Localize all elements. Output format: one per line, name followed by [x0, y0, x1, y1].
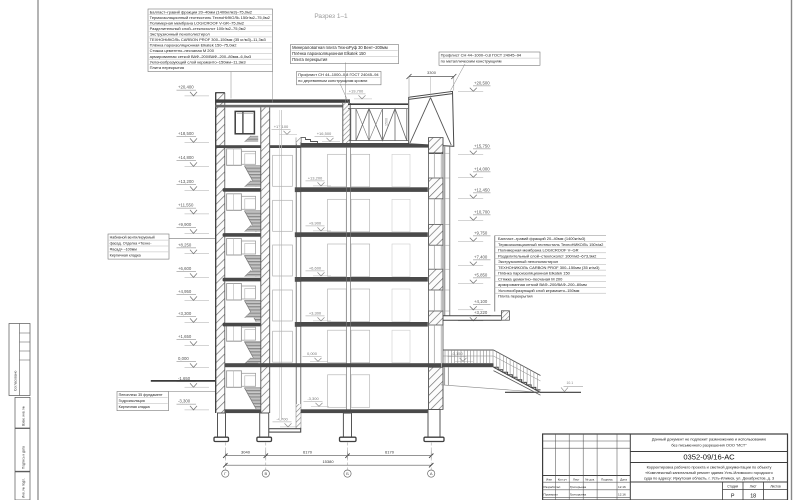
svg-text:Плёнка пароизоляционная Elkate: Плёнка пароизоляционная Elkatek 150–75,0…	[150, 43, 238, 48]
svg-text:+6,600: +6,600	[309, 265, 322, 270]
svg-text:Кирпичная кладка: Кирпичная кладка	[110, 253, 142, 257]
svg-text:армированная сеткой ВАФ–200/ВА: армированная сеткой ВАФ–200/ВАФ–200–80мм…	[150, 54, 252, 59]
svg-text:Разрез 1–1: Разрез 1–1	[314, 13, 348, 20]
svg-text:+6,600: +6,600	[178, 266, 192, 271]
svg-text:Балласт–гравий фракции 20–40мм: Балласт–гравий фракции 20–40мм (1400кг/м…	[150, 9, 253, 14]
svg-text:-3,300: -3,300	[178, 399, 191, 404]
svg-text:18: 18	[750, 494, 756, 500]
svg-text:Пеноплекс 35 фундамент: Пеноплекс 35 фундамент	[119, 393, 163, 397]
svg-text:+3,300: +3,300	[178, 311, 192, 316]
svg-text:Полимерная мембрана LOGICROOF: Полимерная мембрана LOGICROOF V-GR–75,0м…	[150, 20, 245, 25]
svg-text:по металлическим конструкциям: по металлическим конструкциям	[441, 59, 502, 64]
svg-text:Инв. № подл.: Инв. № подл.	[22, 478, 26, 498]
svg-text:Разработал: Разработал	[544, 485, 561, 489]
svg-text:фасад. Отделка «Техно-: фасад. Отделка «Техно-	[110, 242, 153, 246]
svg-text:+12,450: +12,450	[474, 188, 490, 193]
svg-text:Экструзионный пенополистирол: Экструзионный пенополистирол	[498, 259, 559, 264]
svg-text:+10,700: +10,700	[474, 210, 490, 215]
svg-text:Подпись и дата: Подпись и дата	[22, 446, 26, 469]
svg-text:+7,400: +7,400	[474, 255, 488, 260]
svg-text:Профлист СН 44–1000–0,8 ГОСТ 2: Профлист СН 44–1000–0,8 ГОСТ 24045–94	[298, 72, 379, 77]
svg-text:+4,100: +4,100	[474, 299, 488, 304]
svg-text:№ док.: № док.	[585, 477, 595, 481]
svg-text:+20,400: +20,400	[178, 85, 194, 90]
svg-text:Согласовано: Согласовано	[14, 370, 18, 391]
svg-text:-4,700: -4,700	[276, 416, 288, 421]
svg-text:0352-09/16-АС: 0352-09/16-АС	[683, 453, 735, 462]
svg-text:Проверил: Проверил	[544, 492, 558, 496]
svg-text:Плёнка пароизоляционная Elkate: Плёнка пароизоляционная Elkatek 150	[498, 271, 571, 276]
svg-text:Плита перекрытия: Плита перекрытия	[150, 65, 185, 70]
svg-text:Лист: Лист	[573, 477, 580, 481]
svg-text:без письменного разрешения ООО: без письменного разрешения ООО "ИСТ"	[671, 443, 747, 448]
svg-text:Стяжка цементно–песчаная М 200: Стяжка цементно–песчаная М 200	[498, 276, 563, 281]
svg-text:суда по адресу: Иркутская обла: суда по адресу: Иркутская область, г. Ус…	[644, 476, 774, 480]
svg-text:10.1: 10.1	[567, 381, 574, 385]
svg-text:Минераловатная плита ТехноРуф: Минераловатная плита ТехноРуф 30 Вент–20…	[292, 45, 388, 50]
svg-text:+18,500: +18,500	[178, 131, 194, 136]
svg-text:Уклонообразующий слой керамзит: Уклонообразующий слой керамзито–150мм–11…	[150, 59, 247, 64]
svg-text:+3,300: +3,300	[309, 310, 322, 315]
svg-text:+1,650: +1,650	[178, 334, 192, 339]
svg-text:Балласт–гравий фракций 20–40мм: Балласт–гравий фракций 20–40мм (1400кг/м…	[498, 236, 586, 241]
svg-text:+3,220: +3,220	[474, 310, 488, 315]
svg-text:-3,300: -3,300	[307, 396, 319, 401]
svg-text:+14,800: +14,800	[178, 155, 194, 160]
svg-text:-0,150: -0,150	[451, 351, 463, 356]
svg-text:+4,950: +4,950	[178, 289, 192, 294]
svg-text:+13,200: +13,200	[178, 179, 194, 184]
svg-text:Профлист СН 44–1000–0,8 ГОСТ 2: Профлист СН 44–1000–0,8 ГОСТ 24045–94	[441, 53, 522, 58]
svg-text:Полимерная мембрана LOGICROOF: Полимерная мембрана LOGICROOF V–GR	[498, 248, 579, 253]
svg-text:+16,500: +16,500	[317, 131, 332, 136]
svg-text:Разделительный слой–стеклохолс: Разделительный слой–стеклохолст 100г/м2–…	[150, 26, 247, 31]
svg-text:Плёнка пароизоляционная Elkate: Плёнка пароизоляционная Elkatek 150	[292, 51, 366, 56]
svg-text:+20,500: +20,500	[474, 81, 490, 86]
svg-text:Плита перекрытия: Плита перекрытия	[498, 294, 533, 299]
svg-text:Григорьева: Григорьева	[570, 492, 586, 496]
svg-text:Стадия: Стадия	[727, 484, 738, 488]
svg-text:3300: 3300	[427, 70, 437, 75]
svg-text:0,000: 0,000	[178, 356, 189, 361]
svg-text:12.16: 12.16	[618, 492, 626, 496]
svg-text:Корректировка рабочего проекта: Корректировка рабочего проекта и сметной…	[647, 465, 772, 469]
svg-text:12.16: 12.16	[618, 485, 626, 489]
svg-text:армированная сеткой ВАФ–200/ВА: армированная сеткой ВАФ–200/ВАФ–200–80мм	[498, 282, 587, 287]
svg-text:6170: 6170	[385, 450, 395, 455]
svg-text:Дата: Дата	[620, 477, 627, 481]
svg-text:Фасад» –100мм: Фасад» –100мм	[110, 248, 138, 252]
svg-text:+5,850: +5,850	[474, 273, 488, 278]
svg-text:по деревянным конструкциям кро: по деревянным конструкциям кровли	[298, 78, 367, 83]
svg-text:+8,250: +8,250	[178, 242, 192, 247]
svg-text:Экструзионный пенополистирол: Экструзионный пенополистирол	[150, 32, 211, 37]
svg-text:+9,900: +9,900	[178, 222, 192, 227]
svg-text:Листов: Листов	[770, 484, 781, 488]
svg-text:+9,900: +9,900	[309, 220, 322, 225]
svg-text:ТЕХНОНИКОЛЬ CARBON PROF 300–15: ТЕХНОНИКОЛЬ CARBON PROF 300–150мм (35 кг…	[150, 37, 267, 42]
svg-text:Стяжка цементно–песчаная М 200: Стяжка цементно–песчаная М 200	[150, 48, 215, 53]
svg-text:ТЕХНОНИКОЛЬ CARBON PROF 300–15: ТЕХНОНИКОЛЬ CARBON PROF 300–150мм (35 кг…	[498, 265, 600, 270]
svg-text:Разделительный слой–стеклохолс: Разделительный слой–стеклохолст 100г/м2–…	[498, 253, 597, 258]
svg-text:Взам. инв. №: Взам. инв. №	[22, 406, 26, 426]
svg-text:Изм: Изм	[546, 477, 552, 481]
svg-text:Набивной вентилируемый: Набивной вентилируемый	[110, 236, 155, 240]
svg-text:В: В	[264, 471, 267, 476]
svg-text:0,000: 0,000	[307, 351, 318, 356]
svg-text:А: А	[430, 471, 433, 476]
svg-text:+11,550: +11,550	[178, 203, 194, 208]
svg-text:+14,000: +14,000	[474, 167, 490, 172]
svg-text:Уклонообразующий слой керамзит: Уклонообразующий слой керамзито–150мм	[498, 288, 580, 293]
svg-text:Лист: Лист	[750, 484, 757, 488]
svg-text:Б: Б	[346, 471, 349, 476]
svg-text:Григорьева: Григорьева	[570, 485, 586, 489]
svg-text:15380: 15380	[322, 459, 334, 464]
svg-text:Гидроизоляция: Гидроизоляция	[119, 399, 145, 403]
svg-text:Плита перекрытия: Плита перекрытия	[292, 57, 327, 62]
svg-text:1500: 1500	[385, 118, 389, 126]
svg-text:Подпись: Подпись	[601, 477, 613, 481]
svg-text:3040: 3040	[241, 450, 251, 455]
svg-text:+19,700: +19,700	[349, 88, 364, 93]
svg-text:Кол.уч: Кол.уч	[558, 477, 567, 481]
svg-text:Термоизоляционный геотекстиль: Термоизоляционный геотекстиль ТехноНИКОЛ…	[150, 15, 271, 20]
svg-text:Термоизоляционный геотекстиль: Термоизоляционный геотекстиль ТехноНИКОЛ…	[498, 242, 604, 247]
svg-text:Р: Р	[731, 494, 735, 500]
svg-text:Кирпичная кладка: Кирпичная кладка	[119, 405, 151, 409]
svg-text:+9,750: +9,750	[474, 231, 488, 236]
svg-text:+15,750: +15,750	[474, 144, 490, 149]
svg-text:6170: 6170	[303, 450, 313, 455]
svg-text:+13,200: +13,200	[308, 175, 323, 180]
svg-text:Данный документ не подлежит ра: Данный документ не подлежит размножению …	[652, 437, 766, 442]
svg-text:«Комплексный капитальный ремон: «Комплексный капитальный ремонт здания У…	[645, 471, 773, 475]
